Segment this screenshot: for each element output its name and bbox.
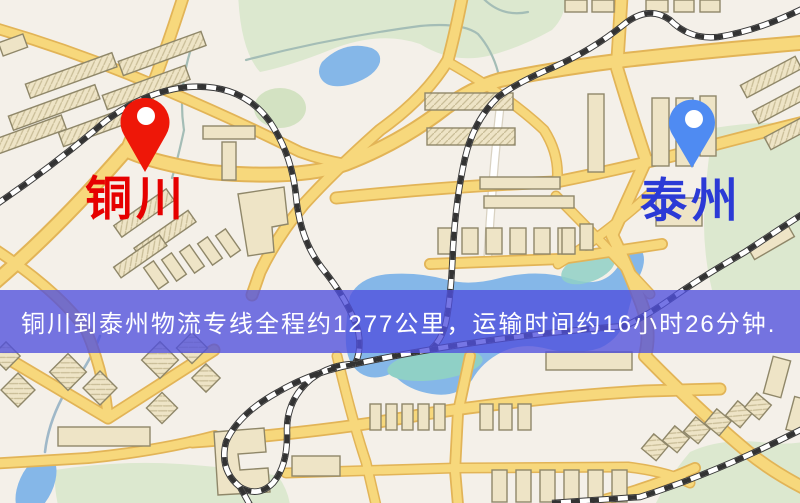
route-info-text: 铜川到泰州物流专线全程约1277公里，运输时间约16小时26分钟. xyxy=(0,304,776,339)
route-map-image: 铜川到泰州物流专线全程约1277公里，运输时间约16小时26分钟. 铜川 泰州 xyxy=(0,0,800,503)
route-info-banner: 铜川到泰州物流专线全程约1277公里，运输时间约16小时26分钟. xyxy=(0,290,800,353)
origin-city-label: 铜川 xyxy=(85,177,187,224)
destination-city-label: 泰州 xyxy=(640,179,742,226)
map-canvas xyxy=(0,0,800,503)
